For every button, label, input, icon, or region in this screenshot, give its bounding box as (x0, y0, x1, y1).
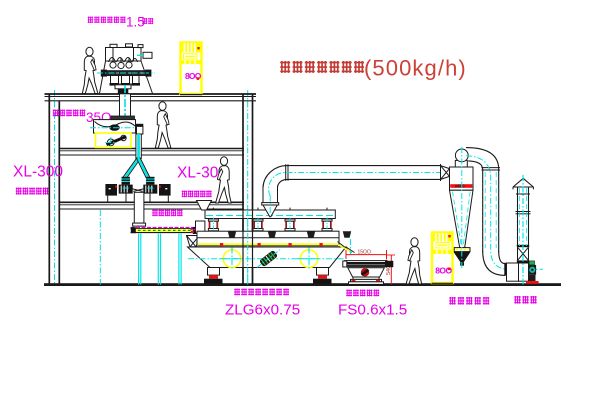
svg-text:15OO: 15OO (358, 249, 371, 255)
svg-text:FS0.6x1.5: FS0.6x1.5 (338, 302, 407, 319)
svg-text:(500kg/h): (500kg/h) (364, 56, 467, 81)
svg-text:1.5: 1.5 (126, 15, 145, 30)
svg-text:XL-300: XL-300 (13, 164, 63, 181)
svg-text:8OO: 8OO (435, 265, 452, 275)
svg-text:8OO: 8OO (185, 71, 202, 81)
svg-text:ø600: ø600 (455, 184, 465, 189)
svg-text:ZLG6x0.75: ZLG6x0.75 (225, 302, 300, 319)
